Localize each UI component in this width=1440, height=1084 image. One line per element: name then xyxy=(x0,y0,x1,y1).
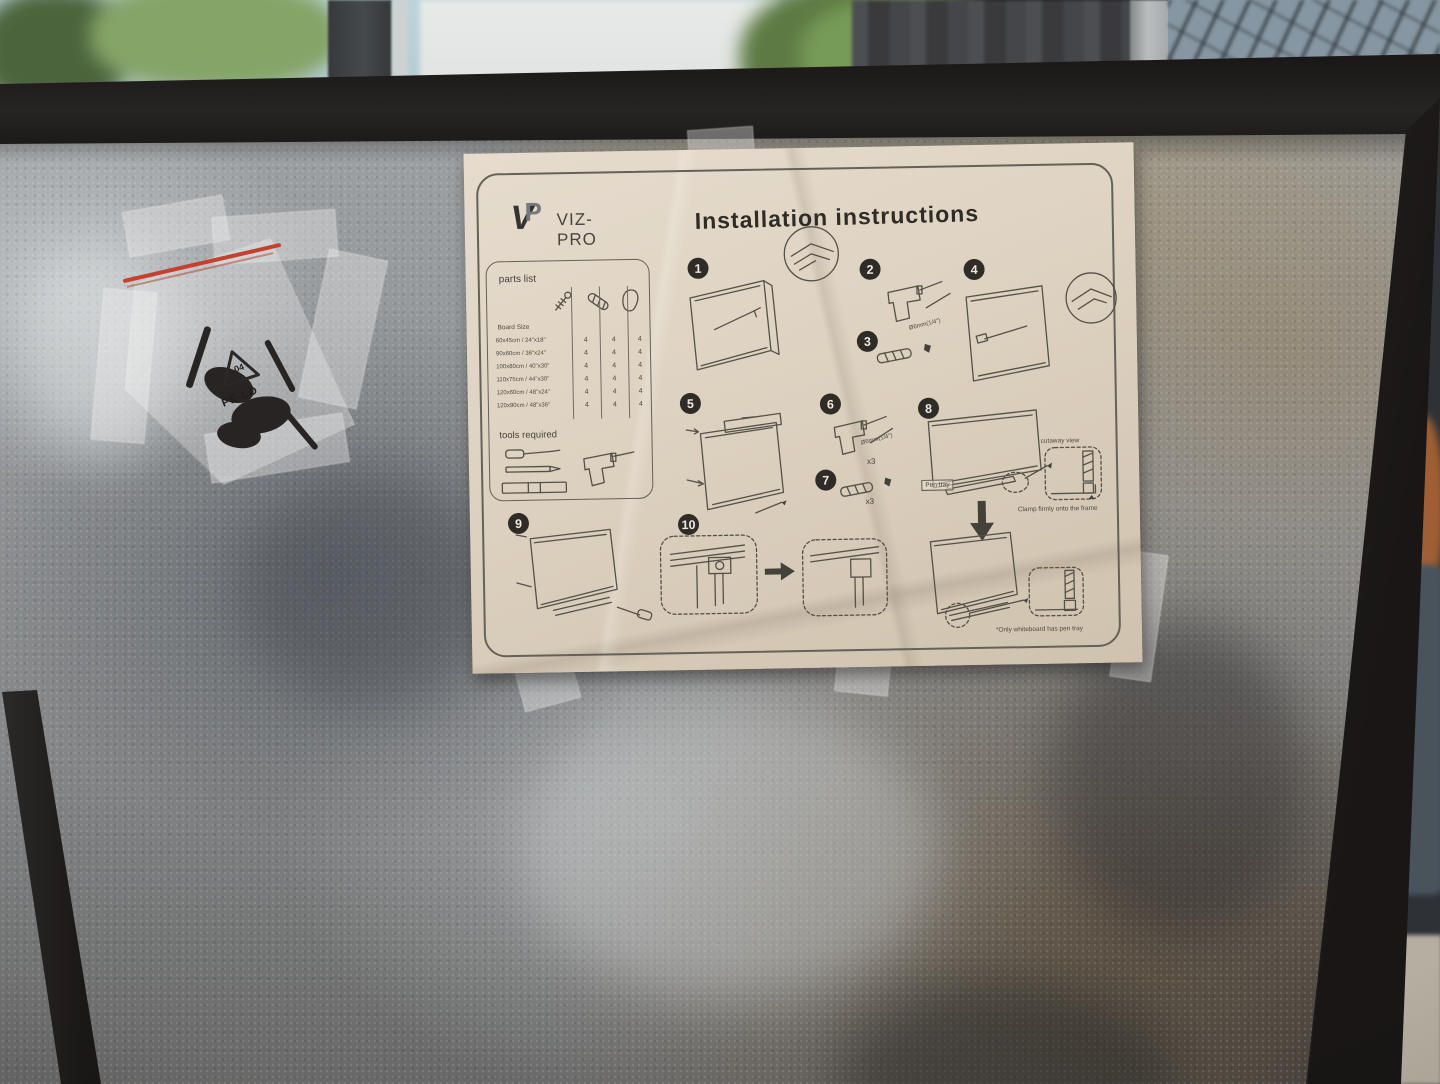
row-count: 4 xyxy=(576,350,596,357)
row-count: 4 xyxy=(630,362,650,369)
pencil-icon xyxy=(504,463,566,476)
brand-name: VIZ-PRO xyxy=(557,210,598,251)
step4-board-diagram xyxy=(956,273,1070,395)
photo-whiteboard-scene: 04 PE-LD V P VIZ-PRO Installation instru… xyxy=(0,0,1440,1084)
step7-quantity: x3 xyxy=(866,497,875,506)
installation-instruction-sheet: V P VIZ-PRO Installation instructions pa… xyxy=(464,142,1143,674)
row-count: 4 xyxy=(605,388,625,395)
step10-arrow xyxy=(763,560,797,583)
row-count: 4 xyxy=(631,401,651,408)
parts-list-box: parts list Board Size 60x45cm / 24"x18" … xyxy=(485,259,653,502)
row-count: 4 xyxy=(604,375,624,382)
row-size: 100x80cm / 40"x30" xyxy=(496,363,576,370)
row-count: 4 xyxy=(630,349,650,356)
screwdriver-icon xyxy=(504,445,564,462)
row-count: 4 xyxy=(576,337,596,344)
step3-anchor-diagram xyxy=(873,338,940,369)
film-highlight-center xyxy=(520,700,940,1000)
row-count: 4 xyxy=(604,349,624,356)
pen-tray-label: Pen tray xyxy=(921,479,953,491)
row-count: 4 xyxy=(576,376,596,383)
row-count: 4 xyxy=(577,402,597,409)
drill-icon xyxy=(578,442,643,497)
row-size: 90x60cm / 36"x24" xyxy=(496,350,576,357)
step9-board-diagram xyxy=(512,523,654,625)
final-cutaway-diagram xyxy=(1027,565,1088,620)
vizpro-logo-p: P xyxy=(524,197,542,228)
level-icon xyxy=(500,479,570,496)
step10-detail-after xyxy=(798,534,891,620)
parts-list-heading: parts list xyxy=(499,274,536,286)
step10-detail-before xyxy=(656,531,761,619)
final-board-diagram xyxy=(918,524,1032,632)
row-size: 110x75cm / 44"x30" xyxy=(496,376,576,383)
row-count: 4 xyxy=(577,389,597,396)
parts-row: 120x90cm / 48"x36" 4 4 4 xyxy=(497,399,647,415)
foliage-left-light xyxy=(90,0,340,90)
step6-quantity: x3 xyxy=(867,457,876,466)
tools-heading: tools required xyxy=(499,429,557,441)
brand-row: V P VIZ-PRO xyxy=(510,199,511,239)
row-count: 4 xyxy=(631,388,651,395)
hardware-bag-assembly: 04 PE-LD xyxy=(95,195,425,495)
row-count: 4 xyxy=(604,362,624,369)
row-count: 4 xyxy=(604,336,624,343)
step4-magnifier-detail xyxy=(1064,270,1119,325)
row-size: 120x90cm / 48"x36" xyxy=(497,402,577,409)
mounting-clip-icon xyxy=(619,287,643,315)
row-count: 4 xyxy=(630,375,650,382)
footnote: *Only whiteboard has pen tray xyxy=(996,625,1083,634)
step1-board-diagram xyxy=(680,270,798,384)
row-size: 120x60cm / 48"x24" xyxy=(497,389,577,396)
cutaway-view-label: cutaway view xyxy=(1041,437,1080,445)
step5-board-bracket-diagram xyxy=(684,404,812,518)
step8-cutaway-diagram xyxy=(1043,445,1106,504)
board-size-label: Board Size xyxy=(497,324,529,332)
film-dark-patch-left xyxy=(240,470,500,710)
row-size: 60x45cm / 24"x18" xyxy=(496,337,576,344)
step1-magnifier-detail xyxy=(781,223,842,284)
film-dark-patch-right xyxy=(1050,620,1310,940)
row-count: 4 xyxy=(605,401,625,408)
row-count: 4 xyxy=(576,363,596,370)
row-count: 4 xyxy=(630,336,650,343)
